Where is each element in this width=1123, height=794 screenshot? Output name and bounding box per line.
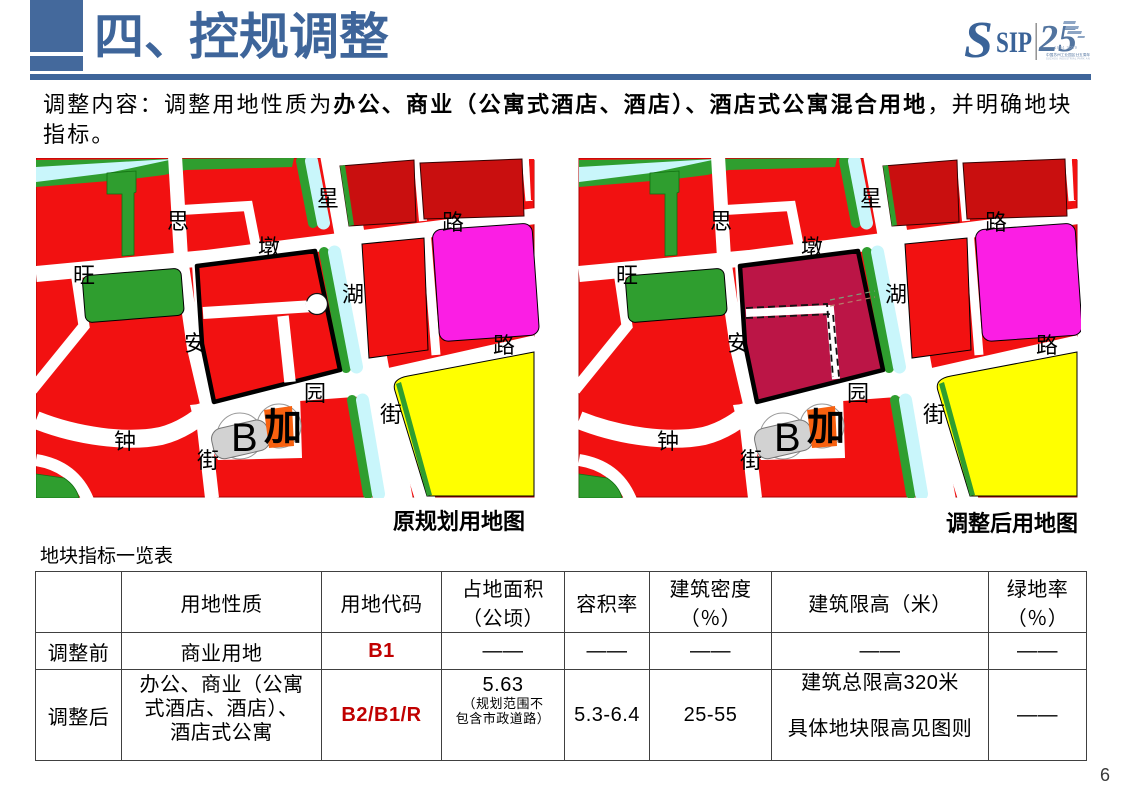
- svg-text:SUZHOU INDUSTRIAL PARK ANNIVER: SUZHOU INDUSTRIAL PARK ANNIVERSARY: [1046, 57, 1090, 61]
- svg-text:SIP: SIP: [996, 26, 1032, 59]
- svg-text:S: S: [964, 12, 993, 62]
- svg-text:1994 2019: 1994 2019: [1054, 45, 1078, 50]
- svg-text:中国苏州工业园区廿五周年管委会: 中国苏州工业园区廿五周年管委会: [1046, 52, 1090, 57]
